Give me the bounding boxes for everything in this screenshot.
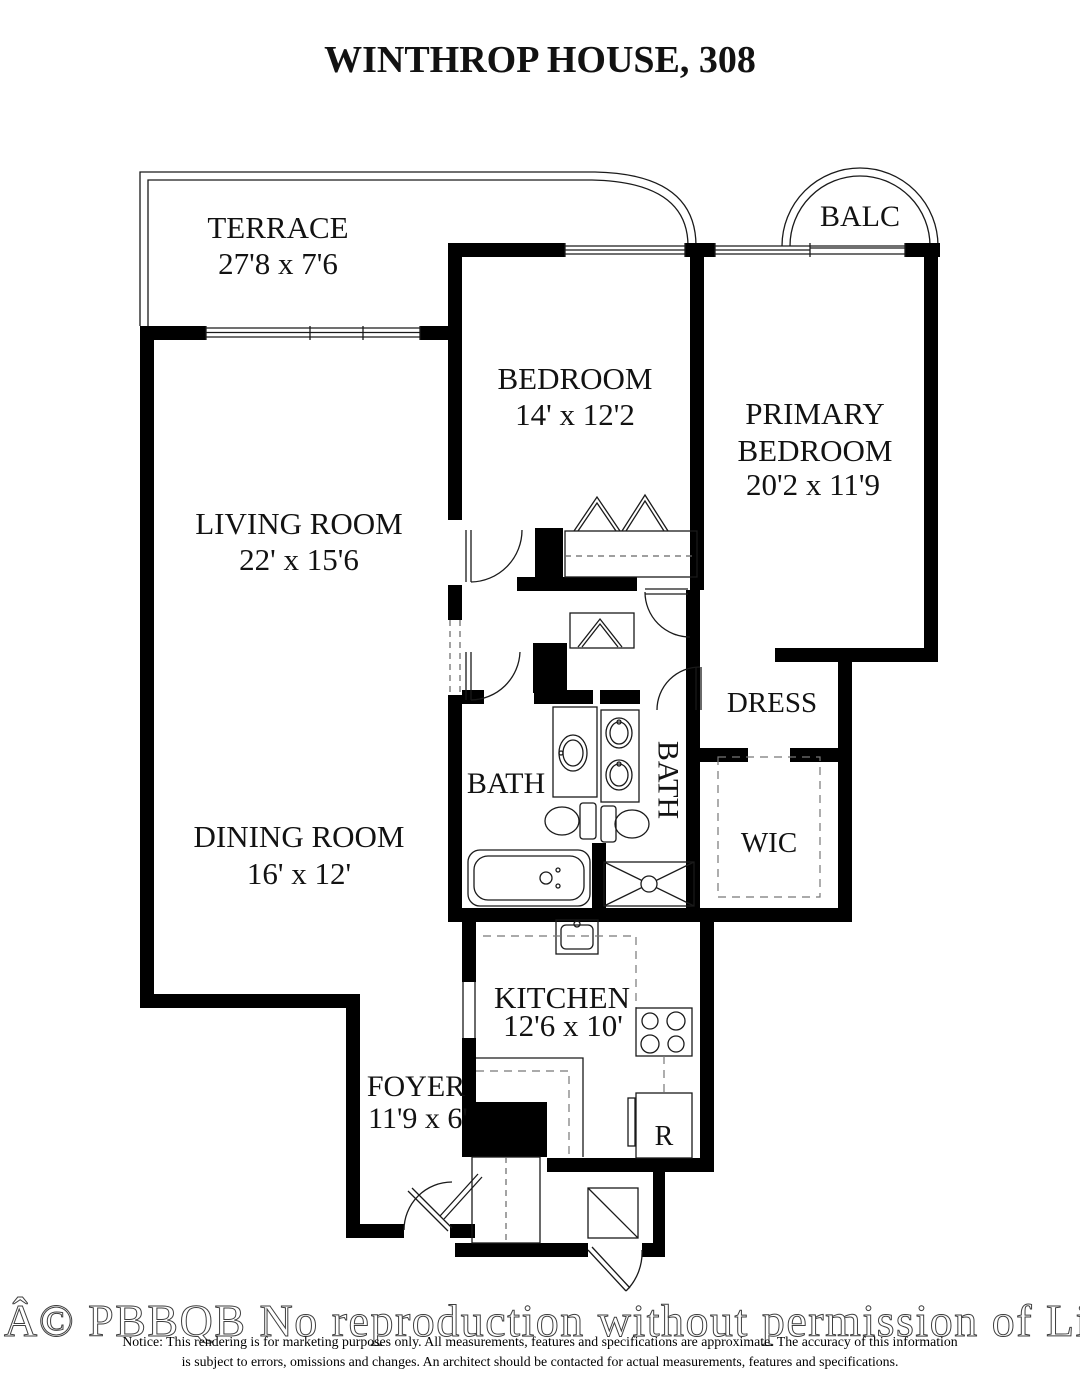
wic-label: WIC [741,827,797,859]
dressing-label: DRESS [727,687,817,719]
refrigerator-label: R [655,1121,674,1152]
living-room-label: LIVING ROOM [195,506,403,541]
hall-bath-fixtures [468,707,597,906]
primary-bedroom-label-2: BEDROOM [737,433,892,468]
terrace-dims: 27'8 x 7'6 [218,246,338,281]
living-room-dims: 22' x 15'6 [239,542,359,577]
disclaimer-line-2: is subject to errors, omissions and chan… [182,1354,899,1369]
primary-bath-label: BATH [652,741,685,819]
terrace-label: TERRACE [207,210,348,245]
bedroom-dims: 14' x 12'2 [515,397,635,432]
hall-bath-label: BATH [467,767,545,800]
primary-bedroom-dims: 20'2 x 11'9 [746,467,880,502]
foyer-dims: 11'9 x 6' [368,1102,468,1135]
primary-bedroom-label-1: PRIMARY [745,396,885,431]
dining-room-dims: 16' x 12' [247,856,351,891]
bathtub [468,850,590,906]
bedroom-label: BEDROOM [497,361,652,396]
disclaimer-line-1: Notice: This rendering is for marketing … [122,1334,957,1349]
floorplan-drawing: WINTHROP HOUSE, 308 TERRACE 27'8 x 7'6 B… [0,0,1080,1398]
page-title: WINTHROP HOUSE, 308 [324,39,756,81]
foyer-label: FOYER [367,1070,465,1103]
dining-room-label: DINING ROOM [194,819,405,854]
floorplan-page: WINTHROP HOUSE, 308 TERRACE 27'8 x 7'6 B… [0,0,1080,1398]
balcony-label: BALC [820,200,900,233]
kitchen-dims: 12'6 x 10' [503,1008,623,1043]
